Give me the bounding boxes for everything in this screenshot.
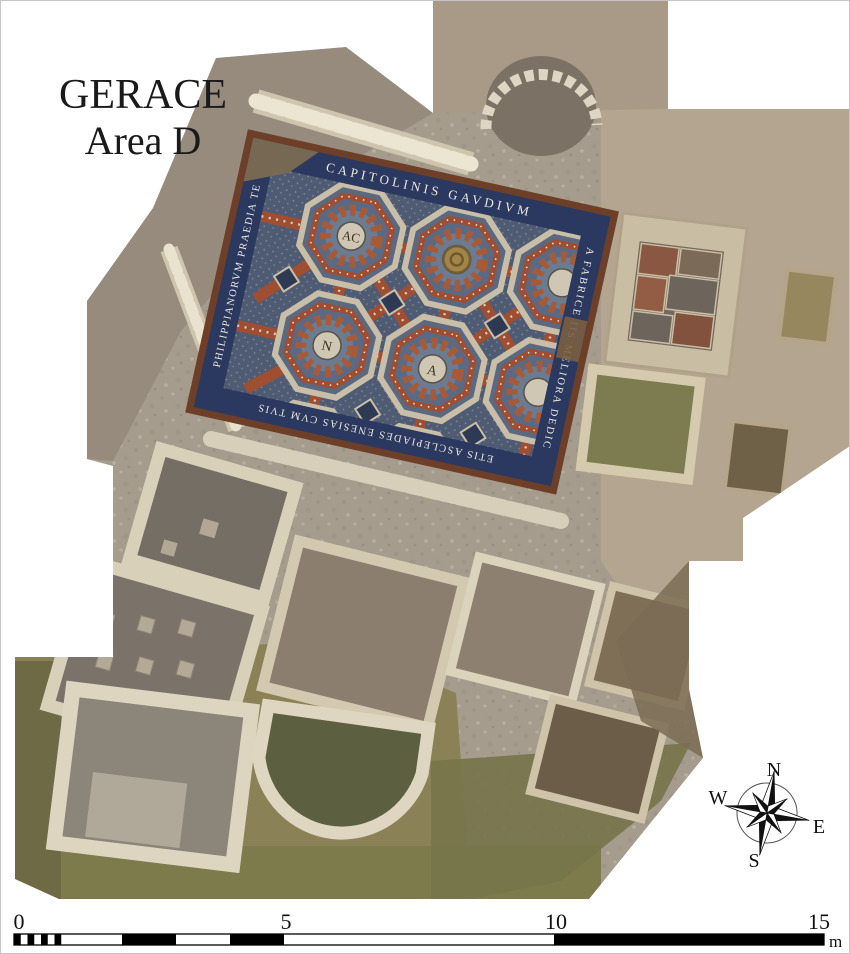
scale-tick-15: 15 [808, 909, 830, 934]
room-southwest [54, 689, 252, 865]
compass-rose: N W E S [709, 759, 826, 872]
scale-tick-0: 0 [14, 909, 25, 934]
scale-tick-10: 10 [545, 909, 567, 934]
pit-east-upper [778, 269, 836, 345]
title-line-1: GERACE [59, 72, 227, 118]
figure-page: AC N A CAPITOLINIS GAVDIVM A FABRICE IIS… [0, 0, 850, 954]
compass-label-south: S [748, 850, 759, 872]
compass-label-north: N [767, 759, 781, 781]
central-room [263, 541, 464, 728]
tile-floor-room [605, 213, 747, 377]
floor-tiles [630, 243, 722, 348]
room-centre-east [450, 557, 600, 702]
excavation-orthophoto: AC N A CAPITOLINIS GAVDIVM A FABRICE IIS… [1, 1, 850, 954]
pit-east-lower [725, 421, 791, 496]
scale-unit-label: m [829, 932, 842, 951]
compass-label-east: E [813, 816, 825, 838]
sunken-room-green [581, 369, 700, 479]
scale-bar: 0 5 10 15 m [14, 909, 843, 951]
compass-label-west: W [709, 787, 728, 809]
floor-patch [85, 772, 187, 848]
scale-tick-5: 5 [281, 909, 292, 934]
title-line-2: Area D [85, 118, 202, 163]
